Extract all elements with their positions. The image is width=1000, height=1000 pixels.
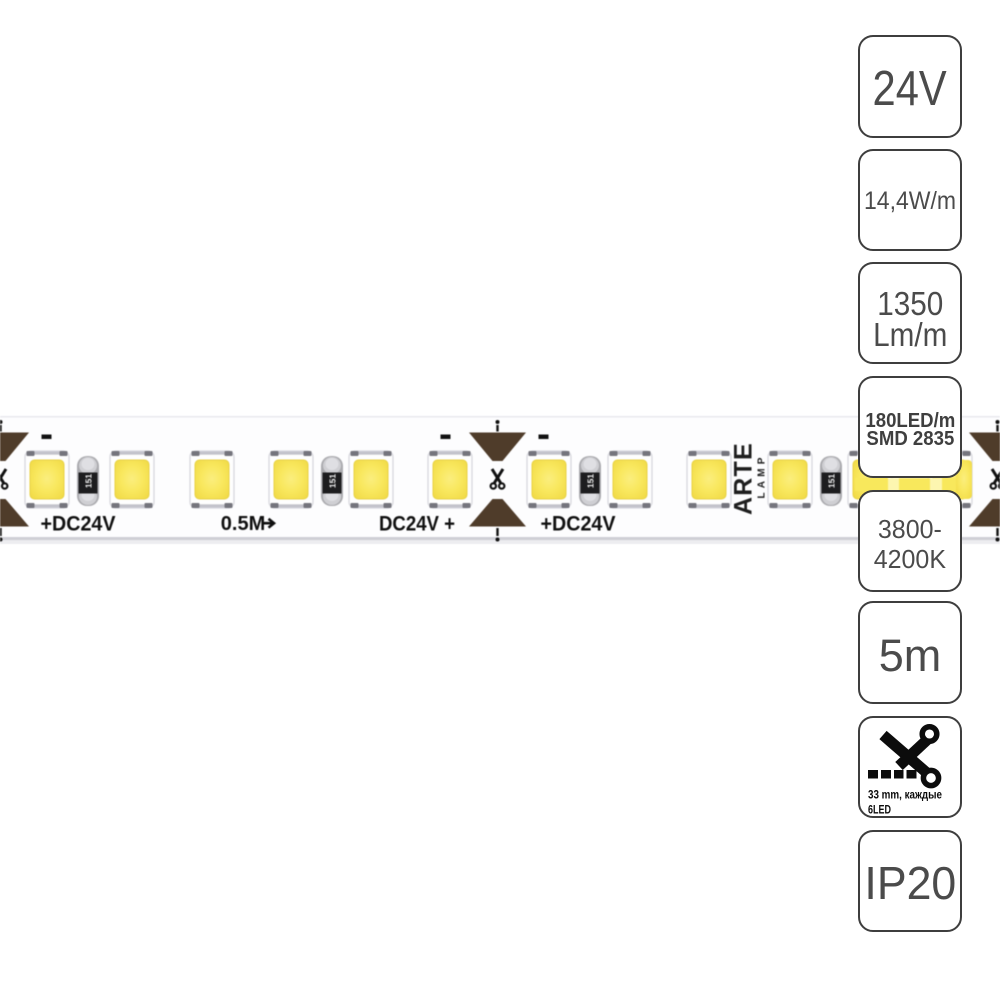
svg-text:6LED: 6LED <box>868 803 891 817</box>
svg-text:+DC24V: +DC24V <box>41 513 116 536</box>
svg-text:+DC24V: +DC24V <box>541 513 616 536</box>
svg-text:33 mm, каждые: 33 mm, каждые <box>868 788 942 802</box>
svg-text:ARTE: ARTE <box>730 442 758 515</box>
svg-text:0.5M: 0.5M <box>221 513 265 535</box>
svg-text:LAMP: LAMP <box>757 453 768 498</box>
svg-text:DC24V +: DC24V + <box>379 513 455 536</box>
